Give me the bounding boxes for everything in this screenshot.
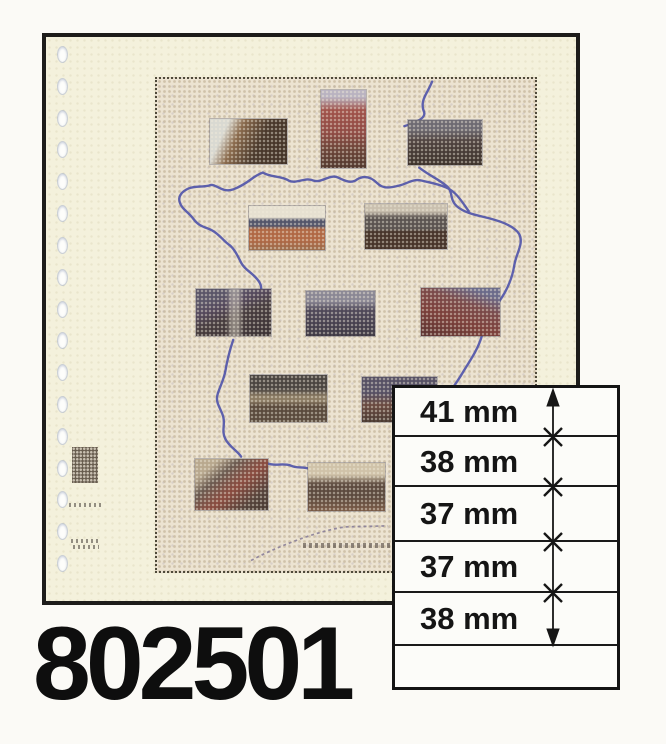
stamp-thumbnail xyxy=(210,119,287,164)
binder-hole xyxy=(58,206,67,221)
spec-row: 38 mm xyxy=(395,593,617,646)
binder-hole xyxy=(58,556,67,571)
binder-hole xyxy=(58,174,67,189)
spec-row: 41 mm xyxy=(395,388,617,437)
spec-row-empty xyxy=(395,646,617,687)
stamp-thumbnail xyxy=(306,291,375,336)
binder-hole xyxy=(58,111,67,126)
binder-hole xyxy=(58,524,67,539)
binder-hole xyxy=(58,333,67,348)
binder-hole xyxy=(58,492,67,507)
binder-hole xyxy=(58,365,67,380)
binder-hole xyxy=(58,238,67,253)
row-height-label: 37 mm xyxy=(395,498,518,529)
stamp-thumbnail xyxy=(365,204,447,249)
row-height-spec-table: 41 mm 38 mm 37 mm 37 mm 38 mm xyxy=(392,385,620,690)
map-border-east xyxy=(419,168,521,390)
binder-hole xyxy=(58,142,67,157)
stamp-thumbnail xyxy=(408,120,482,165)
binder-hole xyxy=(58,461,67,476)
product-photo: 41 mm 38 mm 37 mm 37 mm 38 mm xyxy=(0,0,666,744)
stamp-thumbnail xyxy=(196,289,271,336)
margin-fine-print xyxy=(69,503,101,507)
row-height-label: 38 mm xyxy=(395,446,518,477)
spec-row: 37 mm xyxy=(395,487,617,542)
map-border-southwest xyxy=(217,340,241,457)
margin-fine-print xyxy=(71,539,101,543)
binder-hole xyxy=(58,302,67,317)
stamp-thumbnail xyxy=(250,375,327,422)
binder-hole xyxy=(58,47,67,62)
row-height-label: 38 mm xyxy=(395,603,518,634)
publisher-logo-mark xyxy=(72,447,98,483)
spec-row: 38 mm xyxy=(395,437,617,487)
binder-hole xyxy=(58,270,67,285)
binder-hole-strip xyxy=(55,47,69,571)
stamp-thumbnail xyxy=(421,288,500,336)
spec-row: 37 mm xyxy=(395,542,617,593)
product-number: 802501 xyxy=(33,612,350,716)
map-river-south xyxy=(268,464,309,469)
binder-hole xyxy=(58,397,67,412)
stamp-thumbnail xyxy=(195,459,268,510)
binder-hole xyxy=(58,429,67,444)
binder-hole xyxy=(58,79,67,94)
stamp-thumbnail xyxy=(321,90,366,168)
margin-fine-print xyxy=(73,545,99,549)
print-fine-print xyxy=(303,543,390,548)
row-height-label: 37 mm xyxy=(395,551,518,582)
stamp-thumbnail xyxy=(308,463,385,511)
row-height-label: 41 mm xyxy=(395,396,518,427)
stamp-thumbnail xyxy=(249,206,325,250)
